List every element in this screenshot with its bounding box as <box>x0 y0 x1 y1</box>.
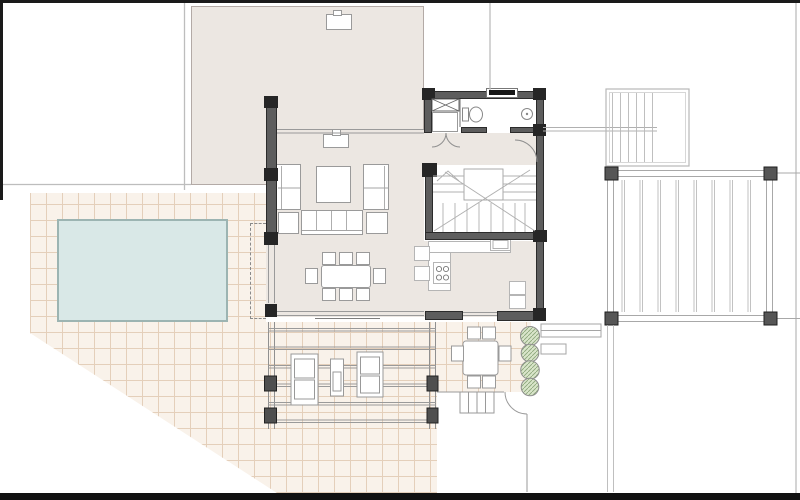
furniture-detail-lines <box>278 166 388 231</box>
bush <box>521 361 540 380</box>
toilet <box>463 107 483 122</box>
door-arc <box>505 392 527 414</box>
frame-bar-left <box>0 0 3 200</box>
floor-plan-canvas <box>0 0 800 500</box>
east-walkway <box>543 128 657 132</box>
bushes <box>521 327 540 396</box>
washbasin <box>522 109 533 120</box>
bush <box>521 344 539 362</box>
pergola-post <box>605 167 777 325</box>
outdoor-dining-set <box>452 327 512 388</box>
sun-loungers <box>291 352 383 405</box>
linework-overlay <box>0 0 800 500</box>
door-arcs <box>432 133 537 162</box>
chair <box>468 327 481 339</box>
bathroom-fixtures <box>432 99 533 127</box>
bush <box>521 327 540 346</box>
cooktop-burners <box>436 241 508 281</box>
frame-bar-bottom <box>0 493 800 500</box>
pergola-large-east <box>605 167 800 492</box>
bush <box>521 378 539 396</box>
outdoor-dining-table <box>463 341 498 375</box>
chair <box>499 346 511 361</box>
planter-bench <box>541 324 601 354</box>
chair <box>452 346 464 361</box>
site-boundary-lines <box>3 3 796 493</box>
washing-machine <box>432 99 459 111</box>
chair <box>483 327 496 339</box>
chair <box>468 376 481 388</box>
chair <box>483 376 496 388</box>
frame-bar-top <box>0 0 800 3</box>
glazing-lines <box>269 130 498 319</box>
staircase <box>433 169 536 232</box>
exterior-steps <box>437 392 527 492</box>
